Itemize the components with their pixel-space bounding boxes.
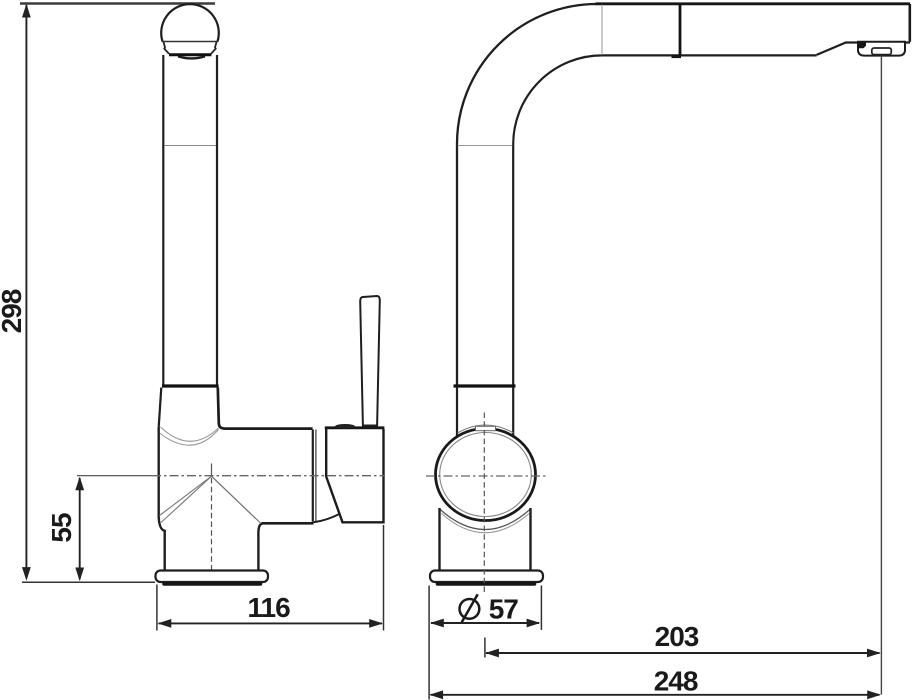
svg-text:55: 55: [46, 513, 77, 543]
svg-text:57: 57: [489, 594, 519, 625]
svg-text:203: 203: [655, 621, 699, 652]
svg-text:248: 248: [654, 666, 698, 697]
svg-text:298: 298: [0, 289, 27, 333]
svg-text:116: 116: [248, 592, 291, 623]
